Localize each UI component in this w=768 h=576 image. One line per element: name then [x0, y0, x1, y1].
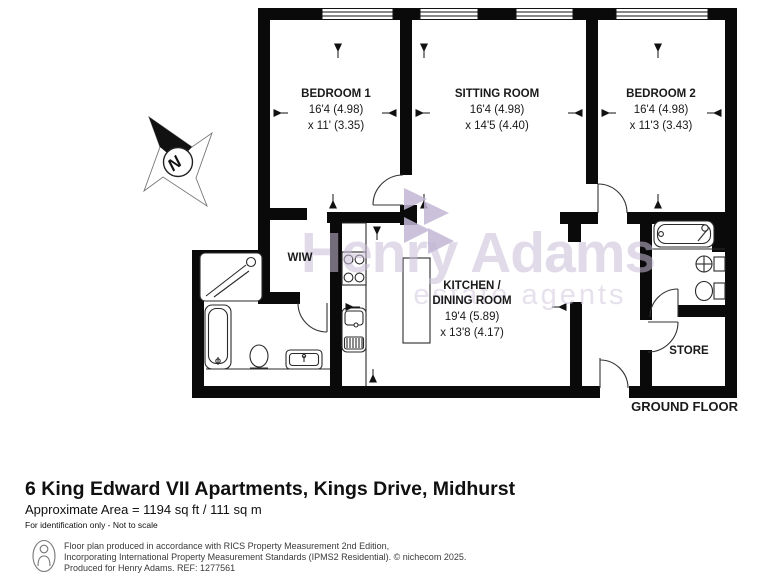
- kitchen-sink-icon: [342, 308, 366, 352]
- room-label-bedroom2: BEDROOM 2 16'4 (4.98) x 11'3 (3.43): [626, 88, 696, 132]
- watermark-line1: Henry Adams: [301, 221, 655, 285]
- address-title: 6 King Edward VII Apartments, Kings Driv…: [25, 478, 516, 500]
- walls: [192, 8, 737, 398]
- svg-text:KITCHEN /: KITCHEN /: [443, 280, 501, 292]
- window-icon: [420, 9, 478, 20]
- svg-text:DINING ROOM: DINING ROOM: [432, 295, 511, 307]
- window-icon: [516, 9, 573, 20]
- room-label-sitting-room: SITTING ROOM 16'4 (4.98) x 14'5 (4.40): [455, 88, 539, 132]
- footer: Floor plan produced in accordance with R…: [33, 541, 466, 574]
- bathtub-icon: [205, 305, 231, 369]
- area-label: Approximate Area = 1194 sq ft / 111 sq m: [25, 502, 262, 517]
- sink-icon: [286, 350, 322, 369]
- shower-icon: [200, 253, 262, 301]
- svg-text:SITTING ROOM: SITTING ROOM: [455, 88, 539, 100]
- svg-text:16'4 (4.98): 16'4 (4.98): [309, 104, 364, 116]
- footer-line1: Floor plan produced in accordance with R…: [64, 541, 389, 551]
- svg-text:BEDROOM 1: BEDROOM 1: [301, 88, 371, 100]
- svg-text:19'4 (5.89): 19'4 (5.89): [445, 311, 500, 323]
- door-arc-bathroom1: [298, 303, 327, 332]
- floorplan-svg: Henry Adams estate agents N BEDROOM 1 16…: [0, 0, 768, 576]
- door-arc-bedroom1: [373, 175, 403, 205]
- svg-text:x 11' (3.35): x 11' (3.35): [308, 120, 364, 132]
- svg-text:16'4 (4.98): 16'4 (4.98): [470, 104, 525, 116]
- toilet-icon: [696, 282, 726, 301]
- room-label-store: STORE: [669, 345, 709, 357]
- room-label-wiw: WIW: [288, 252, 313, 264]
- svg-text:x 13'8 (4.17): x 13'8 (4.17): [440, 327, 504, 339]
- door-arc-bedroom2: [598, 184, 627, 213]
- north-arrow-icon: N: [144, 117, 212, 206]
- scale-note: For identification only - Not to scale: [25, 520, 158, 530]
- toilet-icon: [250, 345, 268, 368]
- svg-text:x 11'3 (3.43): x 11'3 (3.43): [630, 120, 693, 132]
- bathtub-icon: [654, 221, 714, 247]
- title-block: 6 King Edward VII Apartments, Kings Driv…: [25, 478, 516, 530]
- window-icon: [322, 9, 393, 20]
- sink-icon: [696, 256, 725, 272]
- svg-text:BEDROOM 2: BEDROOM 2: [626, 88, 696, 100]
- floorplan-page: Henry Adams estate agents N BEDROOM 1 16…: [0, 0, 768, 576]
- footer-line2: Incorporating International Property Mea…: [64, 552, 466, 562]
- window-icon: [616, 9, 708, 20]
- door-arc-bathroom2: [650, 289, 678, 317]
- room-label-bedroom1: BEDROOM 1 16'4 (4.98) x 11' (3.35): [301, 88, 371, 132]
- ground-floor-label: GROUND FLOOR: [631, 399, 738, 414]
- svg-text:16'4 (4.98): 16'4 (4.98): [634, 104, 689, 116]
- footer-line3: Produced for Henry Adams. REF: 1277561: [64, 563, 235, 573]
- door-arc-entrance: [600, 358, 628, 388]
- person-logo-icon: [33, 541, 55, 572]
- svg-text:x 14'5 (4.40): x 14'5 (4.40): [465, 120, 529, 132]
